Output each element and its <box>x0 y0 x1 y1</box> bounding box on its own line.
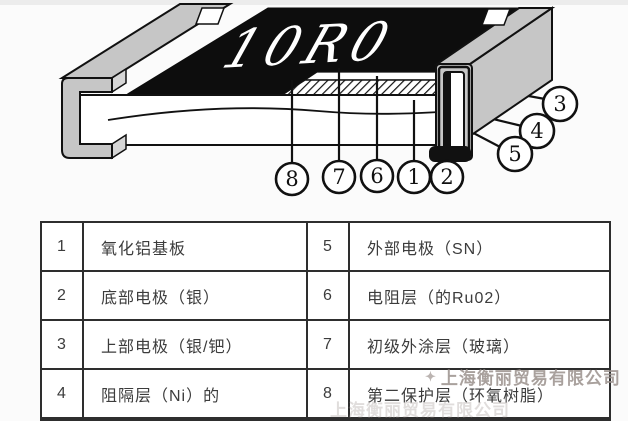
legend-number: 5 <box>308 223 350 272</box>
svg-text:7: 7 <box>332 165 345 189</box>
svg-text:6: 6 <box>370 164 383 188</box>
legend-description: 底部电极（银） <box>84 272 308 321</box>
legend-description: 外部电极（SN） <box>350 223 609 272</box>
bottom-electrode-foot <box>429 146 471 162</box>
callout-8: 8 <box>276 163 308 195</box>
upper-electrode-band <box>444 72 451 152</box>
callout-5: 5 <box>498 137 532 171</box>
svg-text:3: 3 <box>553 92 566 116</box>
legend-description: 上部电极（银/钯） <box>84 321 308 370</box>
callout-3: 3 <box>543 87 577 121</box>
legend-number: 7 <box>308 321 350 370</box>
callout-1: 1 <box>398 161 430 193</box>
legend-number: 1 <box>42 223 84 272</box>
company-watermark: ✦ 上海衡丽贸易有限公司 <box>425 364 621 389</box>
legend-description: 电阻层（的Ru02） <box>350 272 609 321</box>
legend-description: 阻隔层（Ni）的 <box>84 370 308 419</box>
legend-number: 6 <box>308 272 350 321</box>
legend-number: 3 <box>42 321 84 370</box>
legend-number: 4 <box>42 370 84 419</box>
legend-number: 2 <box>42 272 84 321</box>
company-logo-icon: ✦ <box>425 369 437 385</box>
svg-text:8: 8 <box>285 167 298 191</box>
callout-6: 6 <box>361 160 393 192</box>
company-watermark-text: 上海衡丽贸易有限公司 <box>441 364 621 389</box>
callout-7: 7 <box>323 161 355 193</box>
svg-text:4: 4 <box>530 119 543 143</box>
legend-description: 氧化铝基板 <box>84 223 308 272</box>
chip-resistor-cutaway-diagram: 10R0 8 7 6 1 2 3 4 5 <box>0 0 628 220</box>
svg-text:1: 1 <box>407 165 420 189</box>
legend-description: 初级外涂层（玻璃） <box>350 321 609 370</box>
svg-text:2: 2 <box>440 165 453 189</box>
substrate-front-face <box>78 95 447 145</box>
callout-2: 2 <box>431 161 463 193</box>
chip-resistor-structure-page: { "diagram": { "chip_marking": "10R0", "… <box>0 0 628 405</box>
svg-text:5: 5 <box>508 142 521 166</box>
company-watermark-faint: 上海衡丽贸易有限公司 <box>330 396 510 421</box>
layer-legend-table: 1 氧化铝基板 5 外部电极（SN） 2 底部电极（银） 6 电阻层（的Ru02… <box>40 221 611 421</box>
